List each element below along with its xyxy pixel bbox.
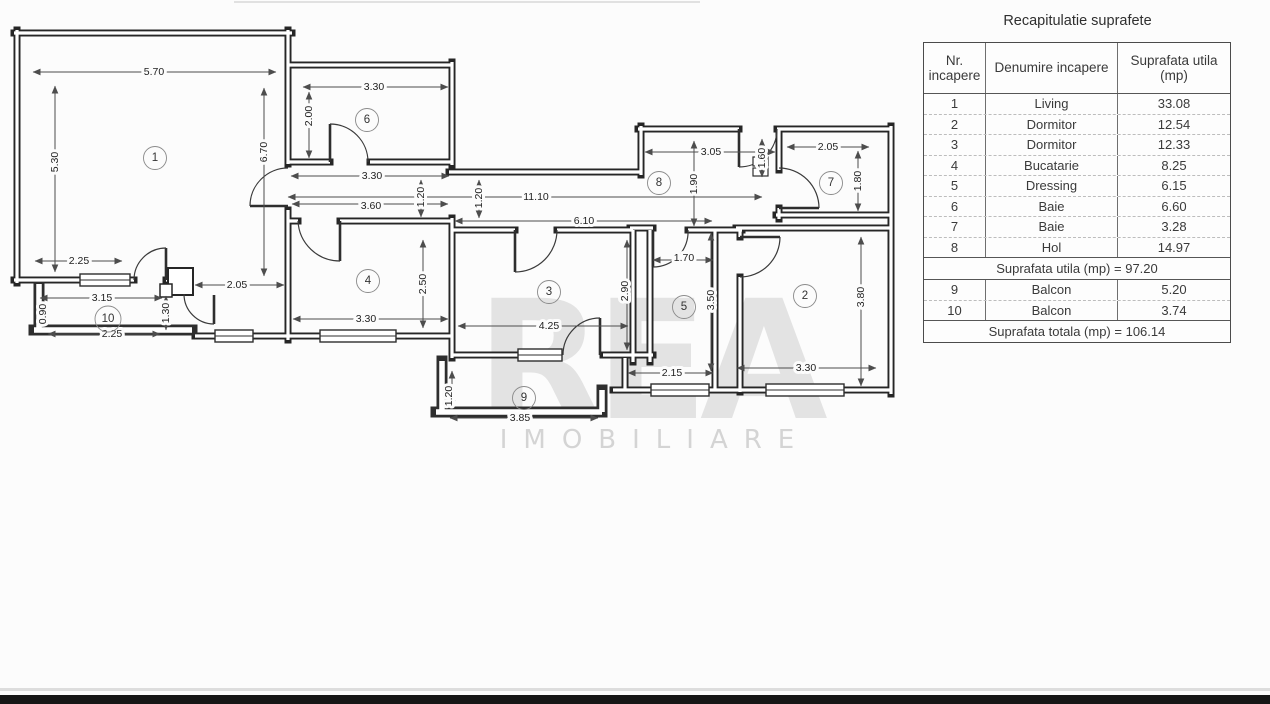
cell-nr: 2 [924, 115, 986, 135]
dim-label: 1.20 [473, 188, 485, 209]
door-balcony10 [134, 248, 166, 280]
table-row: 3 Dormitor 12.33 [924, 134, 1230, 155]
cell-name: Balcon [986, 280, 1118, 300]
room-number: 2 [802, 290, 808, 302]
room-number: 3 [546, 286, 552, 298]
cell-name: Balcon [986, 301, 1118, 321]
table-title: Recapitulatie suprafete [923, 13, 1232, 29]
dim-label: 4.25 [539, 320, 560, 332]
dim-label: 2.15 [662, 367, 683, 379]
cell-area: 6.60 [1118, 197, 1230, 217]
cell-area: 5.20 [1118, 280, 1230, 300]
table-header-row: Nr. incapere Denumire incapere Suprafata… [924, 43, 1230, 94]
room-marker-baie7: 7 [820, 172, 843, 195]
table-row: 8 Hol 14.97 [924, 237, 1230, 258]
dim-label: 1.60 [756, 148, 768, 169]
room-number: 1 [152, 152, 158, 164]
dim-label: 5.30 [49, 152, 61, 173]
cell-name: Bucatarie [986, 156, 1118, 176]
cell-area: 3.74 [1118, 301, 1230, 321]
dim-label: 2.90 [619, 281, 631, 302]
window-icon [215, 330, 253, 342]
cell-name: Hol [986, 238, 1118, 258]
room-number: 5 [681, 301, 687, 313]
subtotal-row: Suprafata utila (mp) = 97.20 [924, 257, 1230, 279]
room-number: 6 [364, 114, 370, 126]
window-icon [766, 384, 844, 396]
cell-name: Baie [986, 197, 1118, 217]
room-number: 10 [102, 313, 115, 325]
dim-label: 6.10 [574, 215, 595, 227]
cell-nr: 10 [924, 301, 986, 321]
door-living [250, 168, 288, 206]
cell-name: Living [986, 94, 1118, 114]
cell-name: Dressing [986, 176, 1118, 196]
cell-area: 33.08 [1118, 94, 1230, 114]
total-value: 106.14 [1126, 324, 1166, 339]
dim-label: 2.05 [227, 279, 248, 291]
table-row: 2 Dormitor 12.54 [924, 114, 1230, 135]
room-number: 8 [656, 177, 662, 189]
dim-label: 1.30 [160, 303, 172, 324]
dim-label: 3.85 [510, 412, 531, 424]
table-row: 9 Balcon 5.20 [924, 280, 1230, 300]
room-number: 7 [828, 177, 834, 189]
cell-nr: 3 [924, 135, 986, 155]
dim-label: 2.00 [303, 106, 315, 127]
dim-label: 1.80 [852, 171, 864, 192]
dim-label: 2.25 [102, 328, 123, 340]
window-icon [651, 384, 709, 396]
cell-area: 6.15 [1118, 176, 1230, 196]
dim-label: 2.50 [417, 274, 429, 295]
cell-area: 8.25 [1118, 156, 1230, 176]
table-row: 4 Bucatarie 8.25 [924, 155, 1230, 176]
door-room7 [779, 168, 819, 208]
room-marker-bucatarie: 4 [357, 270, 380, 293]
window-icon [518, 349, 562, 361]
room-marker-hol: 8 [648, 172, 671, 195]
table-row: 6 Baie 6.60 [924, 196, 1230, 217]
total-label: Suprafata totala (mp) = [989, 324, 1122, 339]
room-number: 9 [521, 392, 527, 404]
table-row: 1 Living 33.08 [924, 94, 1230, 114]
dim-label: 3.30 [796, 362, 817, 374]
dim-label: 3.60 [361, 200, 382, 212]
dim-label: 3.50 [705, 290, 717, 311]
cell-nr: 6 [924, 197, 986, 217]
dim-label: 2.25 [69, 255, 90, 267]
door-room6 [330, 124, 368, 162]
header-denumire: Denumire incapere [986, 43, 1118, 93]
dim-label: 1.70 [674, 252, 695, 264]
dim-label: 1.20 [415, 187, 427, 208]
room-marker-living: 1 [144, 147, 167, 170]
total-row: Suprafata totala (mp) = 106.14 [924, 320, 1230, 342]
cell-nr: 8 [924, 238, 986, 258]
dim-label: 5.70 [144, 66, 165, 78]
subtotal-label: Suprafata utila (mp) = [996, 261, 1121, 276]
dim-label: 3.05 [701, 146, 722, 158]
dim-label: 1.20 [443, 386, 455, 407]
scan-smear [0, 688, 1270, 691]
dim-label: 3.30 [364, 81, 385, 93]
cell-name: Dormitor [986, 115, 1118, 135]
cell-area: 3.28 [1118, 217, 1230, 237]
room-number: 4 [365, 275, 372, 287]
table-row: 7 Baie 3.28 [924, 216, 1230, 237]
dim-label: 3.15 [92, 292, 113, 304]
table-row: 5 Dressing 6.15 [924, 175, 1230, 196]
cell-nr: 7 [924, 217, 986, 237]
cell-name: Dormitor [986, 135, 1118, 155]
dim-label: 3.80 [855, 287, 867, 308]
cell-area: 14.97 [1118, 238, 1230, 258]
subtotal-value: 97.20 [1125, 261, 1158, 276]
page-bottom-bar [0, 695, 1270, 704]
room-marker-baie6: 6 [356, 109, 379, 132]
cell-nr: 1 [924, 94, 986, 114]
dim-label: 3.30 [356, 313, 377, 325]
cell-nr: 5 [924, 176, 986, 196]
door-room4 [298, 221, 340, 261]
table-body-main: 1 Living 33.08 2 Dormitor 12.54 3 Dormit… [924, 94, 1230, 257]
window-icon [80, 274, 130, 286]
surface-summary-table: Nr. incapere Denumire incapere Suprafata… [923, 42, 1231, 343]
header-suprafata: Suprafata utila (mp) [1118, 43, 1230, 93]
cell-nr: 9 [924, 280, 986, 300]
dim-label: 3.30 [362, 170, 383, 182]
cell-name: Baie [986, 217, 1118, 237]
dim-label: 6.70 [258, 142, 270, 163]
cell-nr: 4 [924, 156, 986, 176]
cell-area: 12.33 [1118, 135, 1230, 155]
dim-label: 0.90 [37, 304, 49, 325]
table-body-balconies: 9 Balcon 5.20 10 Balcon 3.74 [924, 279, 1230, 320]
header-nr: Nr. incapere [924, 43, 986, 93]
window-icon [320, 330, 396, 342]
dim-label: 2.05 [818, 141, 839, 153]
door-terrace [184, 294, 214, 324]
cell-area: 12.54 [1118, 115, 1230, 135]
dim-label: 11.10 [523, 191, 549, 203]
watermark-company-text: IMOBILIARE [500, 425, 811, 455]
table-row: 10 Balcon 3.74 [924, 300, 1230, 321]
dim-label: 1.90 [688, 174, 700, 195]
scanned-floor-plan-page: { "plan": { "rooms": ["1","2","3","4","5… [0, 0, 1270, 704]
